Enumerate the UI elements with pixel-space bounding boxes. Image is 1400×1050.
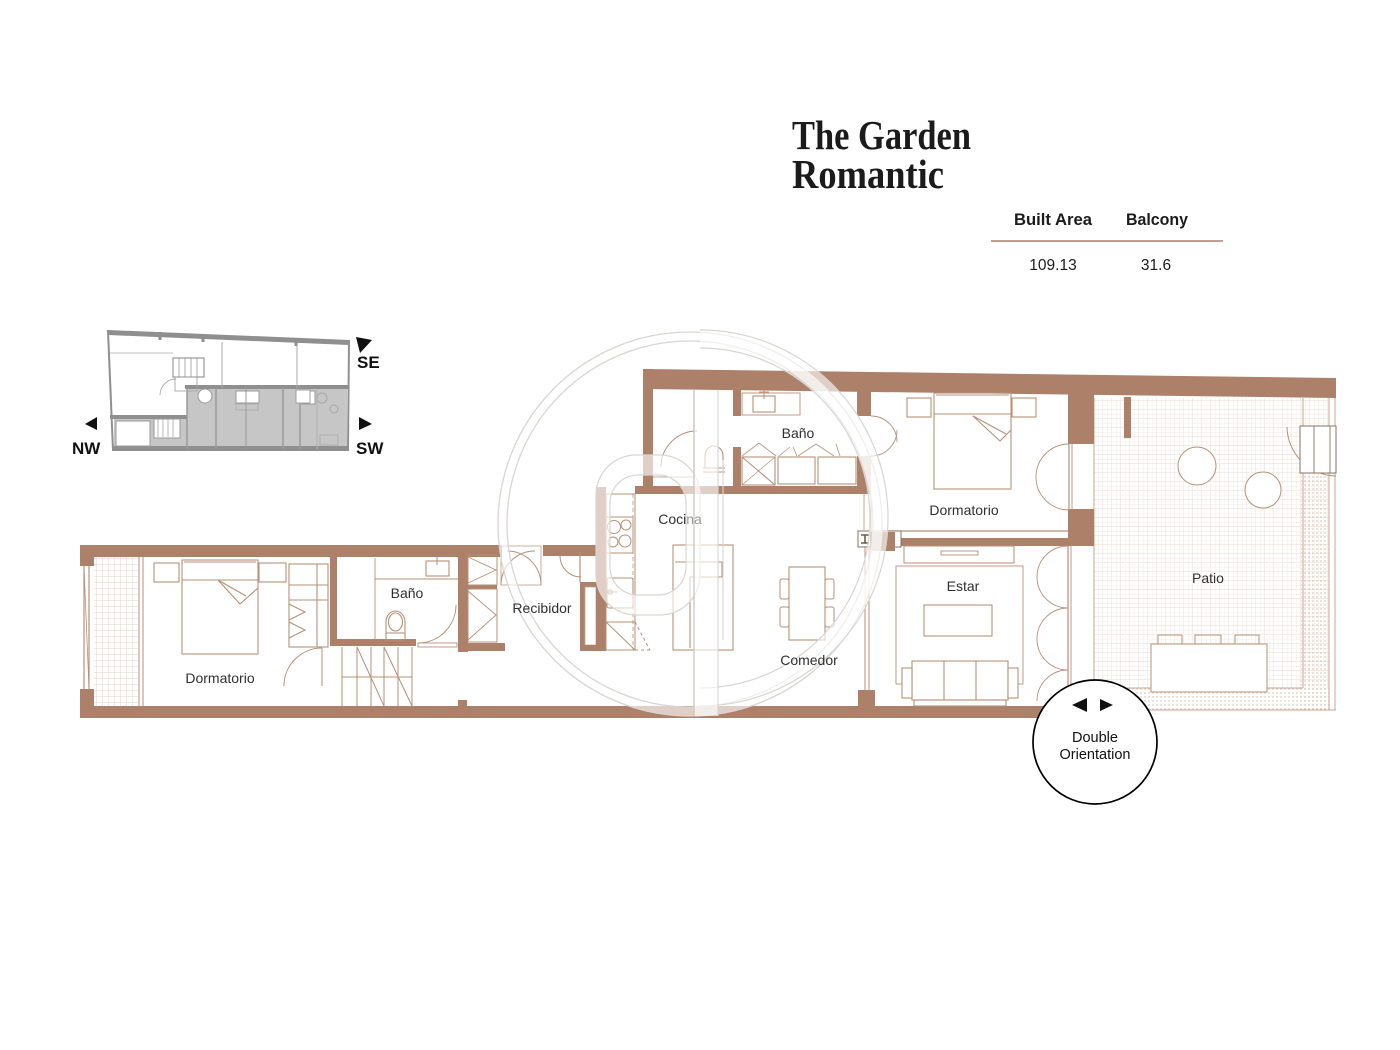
svg-text:Recibidor: Recibidor xyxy=(512,600,571,616)
svg-text:SE: SE xyxy=(357,353,380,372)
svg-text:Dormatorio: Dormatorio xyxy=(929,502,998,518)
svg-text:NW: NW xyxy=(72,439,101,458)
svg-text:Orientation: Orientation xyxy=(1060,747,1131,763)
svg-text:SW: SW xyxy=(356,439,384,458)
svg-text:Baño: Baño xyxy=(782,425,815,441)
svg-text:Built Area: Built Area xyxy=(1014,211,1093,229)
svg-text:109.13: 109.13 xyxy=(1029,257,1076,274)
svg-text:Estar: Estar xyxy=(947,578,980,594)
svg-text:Dormatorio: Dormatorio xyxy=(185,670,254,686)
svg-text:Patio: Patio xyxy=(1192,570,1224,586)
svg-text:Romantic: Romantic xyxy=(792,151,944,197)
svg-text:Cocina: Cocina xyxy=(658,511,702,527)
svg-text:Balcony: Balcony xyxy=(1126,211,1189,229)
svg-text:Baño: Baño xyxy=(391,585,424,601)
svg-text:Double: Double xyxy=(1072,730,1118,746)
svg-text:Comedor: Comedor xyxy=(780,652,838,668)
svg-text:31.6: 31.6 xyxy=(1141,257,1171,274)
